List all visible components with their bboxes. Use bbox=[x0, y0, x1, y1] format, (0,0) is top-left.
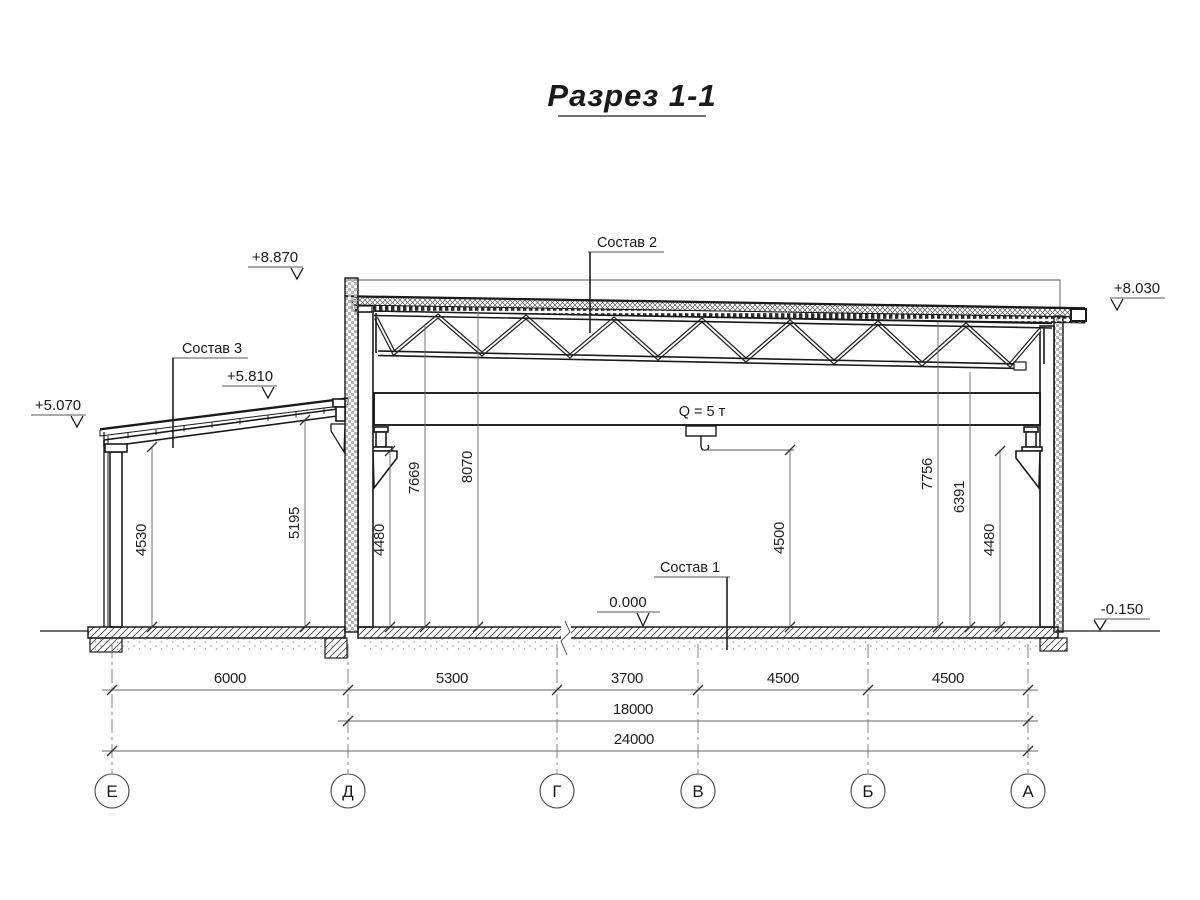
main-floor-slab bbox=[358, 627, 1058, 638]
axis-label-e: Е bbox=[106, 782, 117, 801]
left-runway-and-corbel bbox=[372, 427, 397, 488]
dim-annex-right: 5195 bbox=[286, 507, 303, 539]
elevation-5810: +5.810 bbox=[222, 368, 277, 398]
axis-bubbles: Е Д Г В Б А bbox=[95, 774, 1045, 808]
elevation-minus-0150-text: -0.150 bbox=[1101, 601, 1144, 618]
axis-label-g: Г bbox=[552, 782, 561, 801]
left-column bbox=[358, 312, 373, 627]
dim-annex-left: 4530 bbox=[133, 524, 150, 556]
dim-main-right-truss: 6391 bbox=[951, 481, 968, 513]
title-text: Разрез 1-1 bbox=[547, 78, 716, 113]
dim-span-e-d: 6000 bbox=[214, 670, 246, 687]
elevation-5070: +5.070 bbox=[31, 397, 86, 427]
foundation-block-e bbox=[90, 638, 122, 652]
elevation-8870-text: +8.870 bbox=[252, 249, 298, 266]
annex-roof bbox=[100, 398, 348, 447]
right-column bbox=[1040, 326, 1054, 627]
label-sostav3-text: Состав 3 bbox=[182, 341, 242, 357]
dim-span-b-a: 4500 bbox=[932, 670, 964, 687]
dimension-row-18000: 18000 bbox=[338, 701, 1038, 726]
axis-label-d: Д bbox=[342, 782, 354, 801]
dim-span-g-v: 3700 bbox=[611, 670, 643, 687]
label-sostav2-text: Состав 2 bbox=[597, 235, 657, 251]
vertical-dimensions: 4530 5195 4480 7669 8070 4500 7756 6391 … bbox=[133, 310, 1005, 632]
elevation-8870: +8.870 bbox=[248, 249, 303, 279]
label-sostav3: Состав 3 bbox=[172, 341, 248, 448]
main-roof bbox=[345, 296, 1086, 323]
elevation-8030: +8.030 bbox=[1110, 280, 1165, 310]
label-sostav2: Состав 2 bbox=[588, 235, 664, 333]
axis-grid bbox=[112, 644, 1028, 773]
dim-main-left-truss: 7669 bbox=[406, 462, 423, 494]
dim-main-right-crane: 4480 bbox=[981, 524, 998, 556]
break-gap bbox=[561, 624, 571, 652]
section-drawing-sheet: Разрез 1-1 bbox=[0, 0, 1200, 900]
elevation-0000: 0.000 bbox=[597, 594, 660, 626]
foundation-block-a bbox=[1040, 638, 1067, 651]
annex-left-column bbox=[104, 432, 127, 627]
drawing-title: Разрез 1-1 bbox=[547, 78, 716, 116]
left-corbel bbox=[373, 451, 397, 488]
annex-column-capital bbox=[105, 444, 127, 452]
axis-label-b: Б bbox=[862, 782, 873, 801]
dim-main-left-roof: 8070 bbox=[459, 451, 476, 483]
dim-hook-height: 4500 bbox=[771, 522, 788, 554]
axis-label-a: А bbox=[1022, 782, 1034, 801]
elevation-0000-text: 0.000 bbox=[609, 594, 647, 611]
dimension-row-spans: 6000 5300 3700 4500 4500 bbox=[102, 670, 1038, 695]
left-wall bbox=[345, 278, 358, 632]
elevation-minus-0150: -0.150 bbox=[1094, 601, 1150, 630]
right-corbel bbox=[1016, 451, 1040, 488]
annex-bedding-layer bbox=[94, 638, 337, 650]
dim-span-d-g: 5300 bbox=[436, 670, 468, 687]
section-1-1-drawing: Разрез 1-1 bbox=[0, 0, 1200, 900]
dimension-row-24000: 24000 bbox=[102, 731, 1038, 756]
label-sostav1-text: Состав 1 bbox=[660, 560, 720, 576]
crane-capacity-label: Q = 5 т bbox=[679, 404, 726, 420]
floor-and-foundations bbox=[40, 621, 1160, 658]
main-bedding-layer bbox=[362, 638, 1056, 650]
crane-hook bbox=[701, 436, 709, 450]
dim-total-d-a: 18000 bbox=[613, 701, 653, 718]
dim-total-e-a: 24000 bbox=[614, 731, 654, 748]
elevation-8030-text: +8.030 bbox=[1114, 280, 1160, 297]
dim-main-right-roof: 7756 bbox=[919, 458, 936, 490]
elevation-5810-text: +5.810 bbox=[227, 368, 273, 385]
eave-end-detail bbox=[1071, 309, 1086, 321]
annex-floor-slab bbox=[88, 627, 345, 638]
right-runway-and-corbel bbox=[1016, 427, 1042, 488]
annex-beam-bearing bbox=[331, 399, 345, 452]
axis-label-v: В bbox=[692, 782, 703, 801]
dim-main-left-crane: 4480 bbox=[371, 524, 388, 556]
dim-span-v-b: 4500 bbox=[767, 670, 799, 687]
crane-bridge bbox=[374, 393, 1040, 450]
foundation-block-d bbox=[325, 638, 347, 658]
elevation-5070-text: +5.070 bbox=[35, 397, 81, 414]
crane-trolley bbox=[686, 426, 716, 436]
